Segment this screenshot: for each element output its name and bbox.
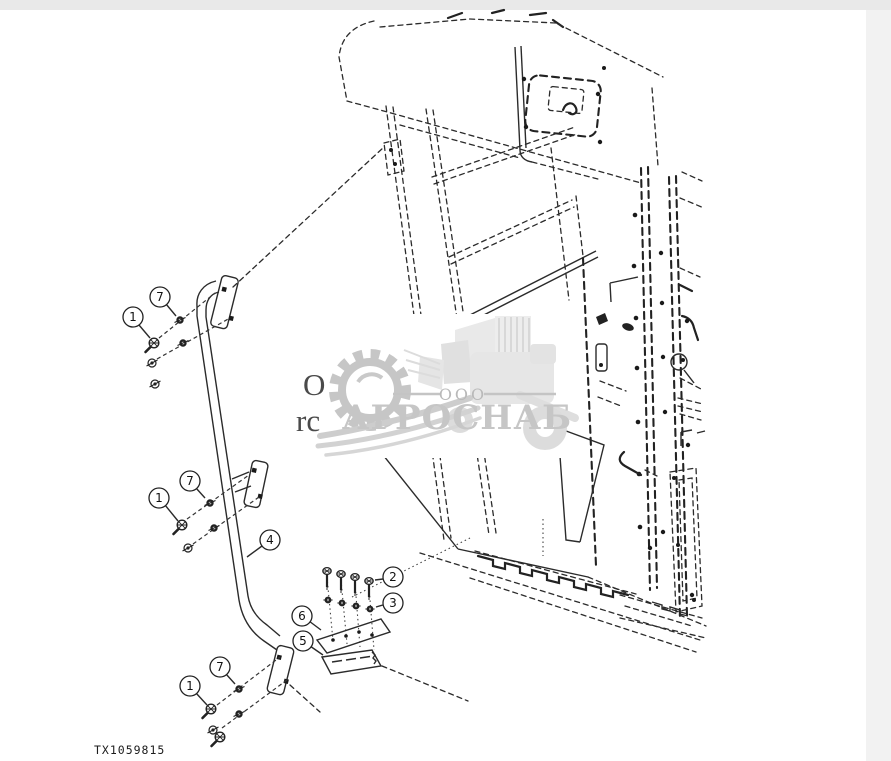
step-tread: [478, 556, 628, 597]
step-tread-part: [322, 650, 381, 674]
callout-7-middle: 7: [180, 471, 200, 491]
machine-body-outline: [339, 10, 663, 183]
callout-2: 2: [383, 567, 403, 587]
callout-7-bottom: 7: [210, 657, 230, 677]
svg-text:1: 1: [186, 679, 194, 693]
access-panel: [522, 66, 606, 144]
callout-1-bottom: 1: [180, 676, 200, 696]
svg-text:1: 1: [129, 310, 137, 324]
callout-1-middle: 1: [149, 488, 169, 508]
page-margin-right: [866, 0, 891, 761]
callout-6: 6: [292, 606, 312, 626]
svg-text:2: 2: [389, 570, 397, 584]
callout-5: 5: [293, 631, 313, 651]
svg-text:7: 7: [186, 474, 194, 488]
handrail-bottom-plate: [266, 645, 294, 696]
svg-text:7: 7: [156, 290, 164, 304]
right-frame: [558, 167, 705, 618]
lower-panel: [352, 436, 706, 652]
callout-7-top: 7: [150, 287, 170, 307]
svg-text:7: 7: [216, 660, 224, 674]
watermark: ООО АГРОСНАБ: [299, 314, 575, 458]
page-margin-top: [0, 0, 891, 10]
parts-diagram-page: ООО АГРОСНАБ O rc: [0, 0, 891, 761]
latch-plate: [596, 344, 607, 371]
svg-text:5: 5: [299, 634, 307, 648]
parts-diagram: ООО АГРОСНАБ O rc: [0, 0, 891, 761]
callout-3: 3: [383, 593, 403, 613]
svg-text:6: 6: [298, 609, 306, 623]
hidden-text-fragment-lower: rc: [296, 403, 320, 438]
watermark-company-name: АГРОСНАБ: [342, 398, 572, 438]
svg-text:4: 4: [266, 533, 274, 547]
drawing-number: TX1059815: [94, 743, 165, 757]
step-backing-plate: [317, 619, 390, 653]
callout-1-top: 1: [123, 307, 143, 327]
svg-text:1: 1: [155, 491, 163, 505]
handrail-mid-bracket: [243, 460, 268, 508]
callout-4: 4: [260, 530, 280, 550]
hidden-text-fragment-upper: O: [303, 367, 325, 402]
svg-text:3: 3: [389, 596, 397, 610]
